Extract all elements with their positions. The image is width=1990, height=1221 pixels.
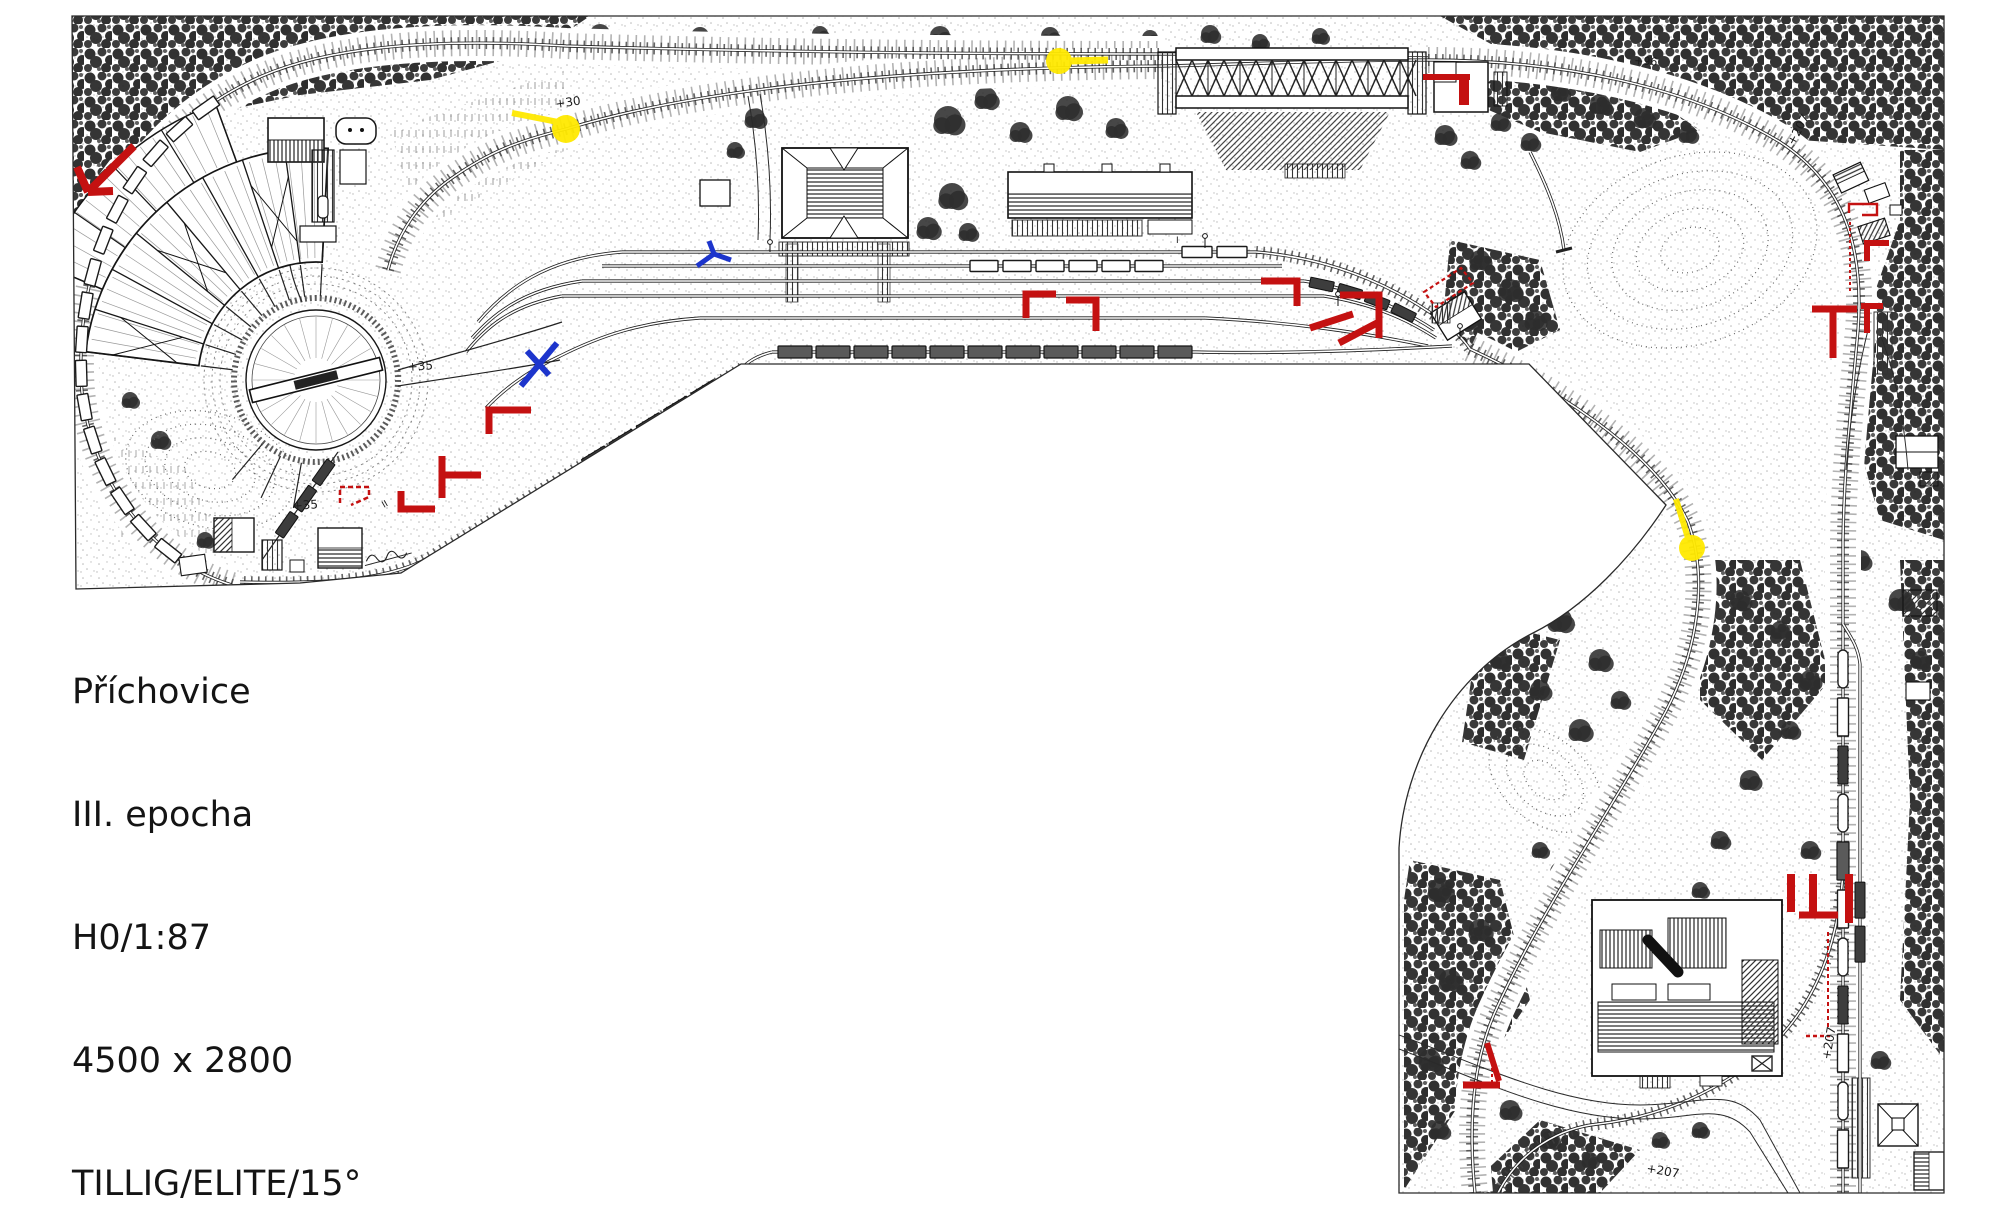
- yellow-dot-top: [1046, 48, 1072, 74]
- plan-size: 4500 x 2800: [72, 1041, 361, 1082]
- elevation-label: +35: [292, 497, 318, 513]
- elevation-label: +35: [407, 358, 433, 374]
- plan-system: TILLIG/ELITE/15°: [72, 1164, 361, 1205]
- elevation-label: +96: [1634, 54, 1658, 69]
- plan-scale: H0/1:87: [72, 918, 361, 959]
- title-block: Příchovice III. epocha H0/1:87 4500 x 28…: [72, 590, 361, 1221]
- track-plan-sheet: +30 +35 +35 +96 +207 +207 +207 II I Příc…: [0, 0, 1990, 1221]
- track-number: I: [1176, 236, 1179, 246]
- barn-yard: [1432, 303, 1450, 323]
- shelter-hut: [700, 180, 730, 206]
- station-building: [782, 148, 908, 238]
- plan-title: Příchovice: [72, 672, 361, 713]
- yellow-dot-left: [552, 115, 580, 143]
- level-crossing-sign: [1752, 1056, 1772, 1071]
- plan-epoch: III. epocha: [72, 795, 361, 836]
- yellow-dot-right: [1679, 535, 1705, 561]
